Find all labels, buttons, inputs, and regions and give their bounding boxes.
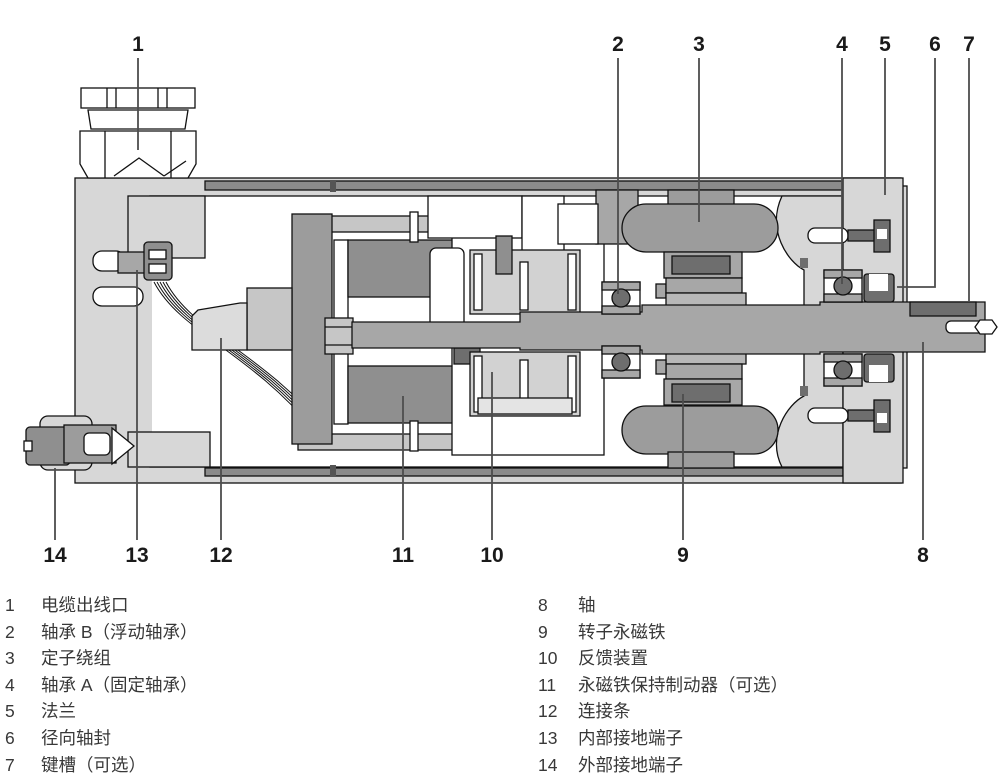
callout-7: 7 bbox=[963, 34, 975, 55]
legend-num: 11 bbox=[538, 672, 578, 699]
legend-label: 反馈装置 bbox=[578, 645, 648, 672]
legend-num: 8 bbox=[538, 592, 578, 619]
legend-label: 连接条 bbox=[578, 698, 631, 725]
legend-item-13: 13内部接地端子 bbox=[538, 725, 788, 752]
rotor-magnet-bottom bbox=[656, 350, 746, 405]
bottom-liner bbox=[205, 468, 843, 476]
legend-label: 径向轴封 bbox=[41, 725, 111, 752]
legend-item-7: 7键槽（可选） bbox=[5, 752, 198, 779]
legend-label: 转子永磁铁 bbox=[578, 619, 666, 646]
keyway bbox=[910, 302, 976, 316]
legend-item-2: 2轴承 B（浮动轴承） bbox=[5, 619, 198, 646]
brake-coil-bottom bbox=[348, 366, 468, 423]
legend-num: 14 bbox=[538, 752, 578, 779]
callout-2: 2 bbox=[612, 34, 624, 55]
radial-seal-bottom bbox=[864, 354, 894, 382]
legend-num: 13 bbox=[538, 725, 578, 752]
callout-9: 9 bbox=[677, 545, 689, 566]
bearing-a-bottom bbox=[824, 354, 862, 386]
legend-num: 9 bbox=[538, 619, 578, 646]
legend-num: 7 bbox=[5, 752, 41, 779]
legend-item-5: 5法兰 bbox=[5, 698, 198, 725]
legend-label: 电缆出线口 bbox=[41, 592, 129, 619]
motor-cross-section bbox=[0, 0, 1001, 585]
legend-item-12: 12连接条 bbox=[538, 698, 788, 725]
callout-1: 1 bbox=[132, 34, 144, 55]
legend-item-4: 4轴承 A（固定轴承） bbox=[5, 672, 198, 699]
legend-label: 外部接地端子 bbox=[578, 752, 683, 779]
bearing-a-top bbox=[824, 270, 862, 302]
callout-3: 3 bbox=[693, 34, 705, 55]
legend-item-11: 11永磁铁保持制动器（可选） bbox=[538, 672, 788, 699]
top-liner bbox=[205, 181, 843, 190]
legend-num: 5 bbox=[5, 698, 41, 725]
bearing-b-bottom bbox=[602, 346, 640, 378]
callout-12: 12 bbox=[209, 545, 232, 566]
callout-4: 4 bbox=[836, 34, 848, 55]
legend-label: 法兰 bbox=[41, 698, 76, 725]
rotor-magnet-top bbox=[656, 252, 746, 307]
radial-seal-top bbox=[864, 274, 894, 302]
legend-item-1: 1电缆出线口 bbox=[5, 592, 198, 619]
legend-item-3: 3定子绕组 bbox=[5, 645, 198, 672]
legend-label: 轴承 B（浮动轴承） bbox=[41, 619, 198, 646]
legend-label: 定子绕组 bbox=[41, 645, 111, 672]
legend-num: 3 bbox=[5, 645, 41, 672]
callout-11: 11 bbox=[392, 545, 414, 566]
legend-num: 2 bbox=[5, 619, 41, 646]
callout-6: 6 bbox=[929, 34, 941, 55]
legend-item-14: 14外部接地端子 bbox=[538, 752, 788, 779]
legend-num: 10 bbox=[538, 645, 578, 672]
legend-label: 轴 bbox=[578, 592, 596, 619]
legend-column-right: 8轴 9转子永磁铁 10反馈装置 11永磁铁保持制动器（可选） 12连接条 13… bbox=[538, 592, 788, 778]
callout-5: 5 bbox=[879, 34, 891, 55]
legend-column-left: 1电缆出线口 2轴承 B（浮动轴承） 3定子绕组 4轴承 A（固定轴承） 5法兰… bbox=[5, 592, 198, 778]
legend-num: 4 bbox=[5, 672, 41, 699]
legend-num: 12 bbox=[538, 698, 578, 725]
callout-10: 10 bbox=[480, 545, 503, 566]
legend-item-9: 9转子永磁铁 bbox=[538, 619, 788, 646]
legend-item-8: 8轴 bbox=[538, 592, 788, 619]
legend-num: 1 bbox=[5, 592, 41, 619]
legend-label: 内部接地端子 bbox=[578, 725, 683, 752]
legend-label: 轴承 A（固定轴承） bbox=[41, 672, 198, 699]
legend-item-6: 6径向轴封 bbox=[5, 725, 198, 752]
bearing-b-top bbox=[602, 282, 640, 314]
callout-8: 8 bbox=[917, 545, 929, 566]
callout-13: 13 bbox=[125, 545, 148, 566]
legend-label: 永磁铁保持制动器（可选） bbox=[578, 672, 788, 699]
legend-num: 6 bbox=[5, 725, 41, 752]
diagram-page: 1 2 3 4 5 6 7 14 13 12 11 10 9 8 1电缆出线口 … bbox=[0, 0, 1001, 783]
legend-label: 键槽（可选） bbox=[41, 752, 146, 779]
callout-14: 14 bbox=[43, 545, 66, 566]
legend-item-10: 10反馈装置 bbox=[538, 645, 788, 672]
